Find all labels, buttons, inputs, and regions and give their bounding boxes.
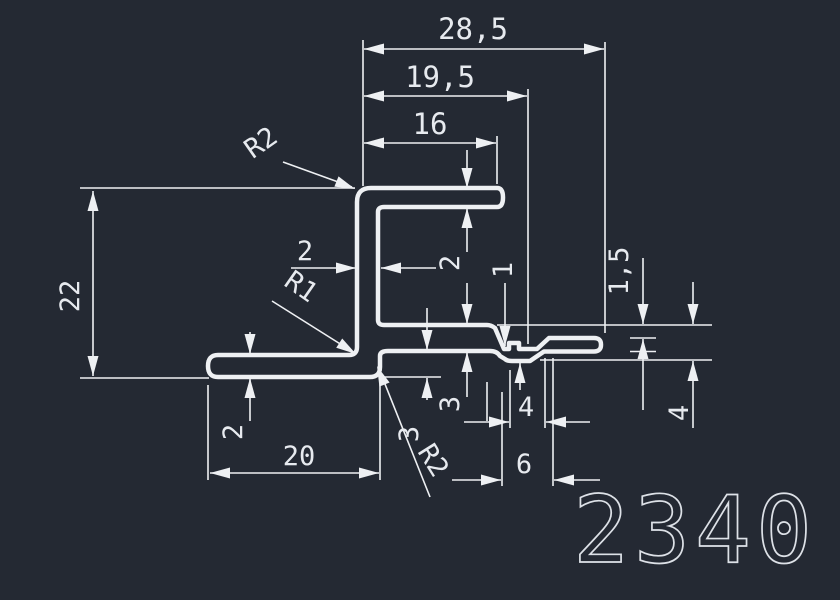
- dim-label-base-2: 2: [218, 424, 249, 440]
- dim-label-28-5: 28,5: [438, 12, 508, 46]
- dim-label-step-4: 4: [518, 392, 534, 423]
- dim-label-stem-2: 2: [297, 236, 313, 267]
- dim-label-step-6: 6: [516, 449, 532, 480]
- cad-drawing-canvas: 28,5 19,5 16 2 R2 2 1 1,5 22 R1 3 3 R2 2…: [0, 0, 840, 600]
- dim-label-drop-1-5: 1,5: [604, 247, 635, 296]
- dim-label-flange-2: 2: [435, 255, 466, 271]
- dim-label-notch-1: 1: [488, 262, 519, 278]
- profile-outline: [208, 188, 601, 377]
- dim-label-arm-3: 3: [435, 396, 466, 412]
- radius-label-r2-corner: R2: [411, 439, 455, 483]
- dim-label-gap-3: 3: [394, 426, 425, 442]
- dim-label-22: 22: [55, 280, 86, 313]
- dim-label-16: 16: [413, 107, 448, 141]
- dim-label-19-5: 19,5: [405, 60, 475, 94]
- radius-label-r1: R1: [279, 265, 323, 309]
- part-number: 2340: [573, 476, 817, 584]
- dim-label-depth-4: 4: [664, 405, 695, 421]
- dim-label-20: 20: [283, 441, 316, 472]
- radius-label-r2-top: R2: [239, 121, 283, 165]
